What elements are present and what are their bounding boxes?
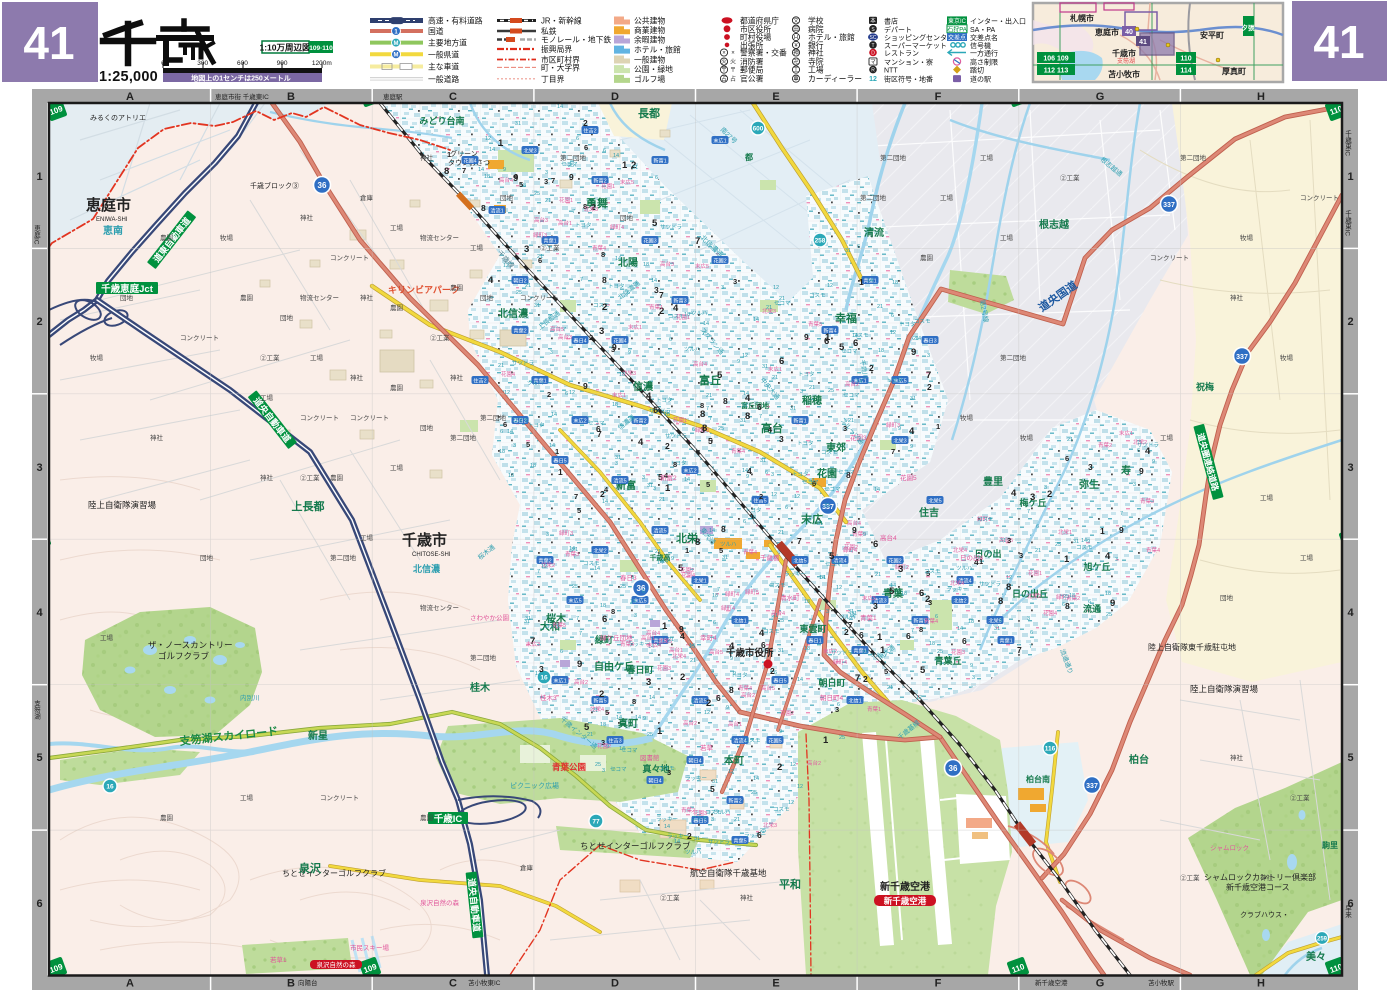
- svg-text:337: 337: [1236, 354, 1248, 361]
- svg-text:ENIWA-SHI: ENIWA-SHI: [96, 217, 128, 223]
- svg-text:21: 21: [778, 530, 784, 536]
- svg-text:3: 3: [898, 564, 903, 575]
- svg-text:青葉4: 青葉4: [1146, 546, 1160, 554]
- svg-text:25: 25: [1055, 542, 1061, 548]
- svg-text:ツルハ: ツルハ: [956, 566, 973, 572]
- svg-text:サツドラ: サツドラ: [708, 839, 730, 846]
- svg-text:8: 8: [702, 423, 707, 434]
- svg-text:苫小牧市: 苫小牧市: [1108, 69, 1140, 79]
- svg-text:緑町3: 緑町3: [559, 529, 573, 537]
- svg-text:6: 6: [500, 429, 503, 435]
- svg-text:セコマ: セコマ: [843, 392, 860, 399]
- svg-text:倉庫: 倉庫: [520, 863, 534, 872]
- svg-text:7: 7: [797, 536, 802, 546]
- svg-text:6: 6: [642, 589, 645, 595]
- svg-text:7: 7: [714, 675, 717, 681]
- svg-text:北栄1: 北栄1: [693, 576, 706, 584]
- svg-text:本町: 本町: [724, 754, 744, 767]
- svg-text:NTT: NTT: [884, 68, 898, 75]
- svg-text:農園: 農園: [240, 293, 253, 302]
- svg-text:18: 18: [684, 312, 690, 318]
- svg-text:石狩PA: 石狩PA: [947, 25, 967, 33]
- svg-text:トヨタ: トヨタ: [745, 506, 762, 514]
- svg-text:31: 31: [534, 303, 540, 309]
- svg-text:6: 6: [576, 136, 579, 142]
- svg-text:8: 8: [444, 166, 449, 177]
- svg-text:1: 1: [1100, 526, 1105, 536]
- svg-text:ラッキー: ラッキー: [656, 816, 678, 823]
- svg-text:団地: 団地: [120, 293, 134, 302]
- svg-text:北栄2: 北栄2: [1027, 592, 1041, 600]
- svg-text:5: 5: [652, 218, 658, 229]
- svg-text:緑町4: 緑町4: [725, 590, 739, 598]
- svg-text:神社: 神社: [808, 48, 824, 58]
- svg-text:ツルハ: ツルハ: [714, 810, 731, 816]
- svg-text:12: 12: [890, 330, 896, 336]
- svg-text:14: 14: [602, 499, 608, 505]
- svg-text:H: H: [1257, 978, 1265, 990]
- svg-text:ゴルフクラブ: ゴルフクラブ: [158, 651, 210, 661]
- svg-text:ラッキー: ラッキー: [628, 641, 650, 648]
- svg-text:6: 6: [584, 143, 588, 152]
- svg-text:振興局界: 振興局界: [541, 44, 572, 54]
- svg-text:花園1: 花園1: [601, 182, 615, 190]
- svg-text:18: 18: [878, 348, 884, 354]
- svg-text:2: 2: [600, 489, 605, 499]
- svg-text:18: 18: [968, 619, 974, 625]
- svg-text:第二団地: 第二団地: [560, 153, 587, 162]
- svg-text:8: 8: [602, 275, 607, 285]
- svg-text:花園2: 花園2: [713, 256, 726, 264]
- svg-text:18: 18: [600, 722, 606, 728]
- svg-text:7: 7: [579, 631, 582, 637]
- svg-text:②工業: ②工業: [660, 893, 680, 902]
- svg-text:恵庭市: 恵庭市: [1095, 27, 1119, 37]
- svg-text:緑ケ丘団地: 緑ケ丘団地: [600, 633, 633, 642]
- svg-text:7: 7: [576, 616, 579, 622]
- svg-text:緑町3: 緑町3: [533, 231, 547, 239]
- svg-text:北栄1: 北栄1: [1058, 528, 1072, 536]
- svg-text:5: 5: [839, 342, 845, 353]
- svg-text:一般県道: 一般県道: [428, 49, 459, 59]
- svg-text:1: 1: [1347, 171, 1353, 183]
- svg-text:21: 21: [875, 572, 881, 578]
- svg-text:高台2: 高台2: [683, 719, 697, 727]
- svg-text:ラッキー: ラッキー: [784, 571, 806, 578]
- svg-text:恵庭駅: 恵庭駅: [383, 92, 403, 101]
- svg-text:F: F: [935, 91, 942, 103]
- svg-text:団地: 団地: [480, 293, 494, 302]
- svg-text:北栄4: 北栄4: [672, 652, 686, 660]
- svg-text:31: 31: [817, 521, 823, 527]
- svg-text:21: 21: [668, 637, 674, 643]
- svg-text:31: 31: [632, 165, 638, 171]
- svg-text:花園2: 花園2: [844, 543, 858, 551]
- svg-text:5: 5: [526, 440, 530, 449]
- svg-text:新富1: 新富1: [793, 416, 806, 424]
- svg-text:泉沢自然の森: 泉沢自然の森: [317, 960, 357, 969]
- svg-text:文: 文: [793, 16, 799, 24]
- svg-text:神社: 神社: [300, 213, 314, 222]
- svg-text:農園: 農園: [450, 283, 463, 292]
- svg-text:9: 9: [804, 332, 809, 342]
- svg-text:3: 3: [771, 472, 774, 478]
- svg-text:セコマ: セコマ: [610, 766, 627, 773]
- svg-text:25: 25: [937, 649, 943, 655]
- svg-text:3: 3: [826, 609, 829, 615]
- svg-text:12: 12: [742, 353, 748, 359]
- svg-text:陸上自衛隊演習場: 陸上自衛隊演習場: [88, 500, 157, 510]
- svg-text:A: A: [126, 978, 134, 990]
- svg-text:9: 9: [910, 444, 913, 450]
- svg-text:25: 25: [839, 735, 845, 741]
- svg-text:6: 6: [602, 614, 607, 625]
- svg-text:2: 2: [927, 382, 932, 392]
- svg-text:G: G: [1096, 91, 1105, 103]
- svg-text:21: 21: [690, 658, 696, 664]
- svg-text:9: 9: [898, 426, 901, 432]
- svg-text:6: 6: [596, 424, 601, 434]
- svg-text:花園4: 花園4: [501, 370, 515, 378]
- svg-text:高台3: 高台3: [660, 260, 674, 268]
- svg-text:18: 18: [1105, 591, 1111, 597]
- svg-text:8: 8: [919, 625, 923, 634]
- svg-text:末広1: 末広1: [768, 365, 782, 373]
- svg-text:1:25,000: 1:25,000: [99, 69, 158, 85]
- svg-text:14: 14: [478, 167, 484, 173]
- svg-text:一般道路: 一般道路: [428, 74, 459, 84]
- svg-text:火: 火: [721, 59, 727, 66]
- svg-text:春日3: 春日3: [923, 336, 936, 344]
- svg-text:青葉1: 青葉1: [860, 613, 877, 622]
- svg-text:21: 21: [877, 304, 883, 310]
- svg-text:3: 3: [999, 618, 1002, 624]
- svg-text:8: 8: [729, 685, 734, 695]
- svg-text:18: 18: [892, 280, 898, 286]
- svg-text:14: 14: [852, 333, 858, 339]
- svg-text:1: 1: [685, 546, 689, 555]
- svg-text:春日1: 春日1: [808, 636, 821, 644]
- svg-text:5: 5: [706, 480, 710, 489]
- svg-text:トヨタ: トヨタ: [656, 396, 673, 404]
- svg-text:3: 3: [1088, 462, 1093, 472]
- svg-text:公共建物: 公共建物: [634, 16, 665, 26]
- svg-text:夕張: 夕張: [1242, 23, 1256, 32]
- svg-text:5: 5: [36, 752, 42, 764]
- svg-text:3: 3: [1115, 557, 1118, 563]
- svg-text:青葉丘: 青葉丘: [934, 655, 961, 666]
- svg-text:団地: 団地: [280, 313, 294, 322]
- svg-text:高台5: 高台5: [761, 684, 775, 692]
- svg-text:6: 6: [873, 539, 878, 550]
- svg-text:農園: 農園: [390, 303, 403, 312]
- svg-text:団地: 団地: [500, 193, 514, 202]
- svg-text:デパート: デパート: [884, 25, 912, 34]
- svg-text:12: 12: [869, 76, 877, 83]
- svg-text:3: 3: [524, 244, 529, 255]
- svg-text:トヨタ: トヨタ: [528, 421, 545, 429]
- svg-text:18: 18: [804, 646, 810, 652]
- svg-text:春日5: 春日5: [553, 456, 566, 464]
- svg-text:セコマ: セコマ: [774, 300, 791, 307]
- svg-text:5: 5: [708, 436, 713, 446]
- svg-text:桂木: 桂木: [469, 681, 491, 694]
- svg-text:物流センター: 物流センター: [300, 293, 339, 302]
- svg-text:コンクリート: コンクリート: [330, 254, 369, 262]
- svg-text:25: 25: [572, 584, 578, 590]
- svg-text:106 109: 106 109: [1043, 56, 1068, 63]
- svg-text:6: 6: [36, 898, 42, 910]
- svg-text:6: 6: [565, 391, 568, 397]
- svg-text:清流5: 清流5: [613, 476, 626, 484]
- svg-text:1: 1: [936, 422, 940, 431]
- svg-text:9: 9: [628, 350, 631, 356]
- svg-text:25: 25: [568, 163, 574, 169]
- svg-text:F: F: [935, 978, 942, 990]
- svg-text:25: 25: [620, 584, 626, 590]
- svg-text:6: 6: [1088, 599, 1091, 605]
- svg-text:18: 18: [662, 410, 668, 416]
- svg-text:2: 2: [1347, 316, 1353, 328]
- svg-text:丁目界: 丁目界: [541, 75, 565, 84]
- svg-text:花園1: 花園1: [559, 196, 573, 204]
- svg-text:R: R: [871, 68, 875, 74]
- svg-text:コンクリート: コンクリート: [300, 414, 339, 422]
- svg-text:カーディーラー: カーディーラー: [808, 74, 862, 84]
- svg-text:東京IC: 東京IC: [948, 17, 967, 25]
- svg-text:神社: 神社: [740, 893, 754, 902]
- svg-text:3: 3: [545, 170, 548, 176]
- svg-text:桂木3: 桂木3: [540, 693, 557, 702]
- svg-text:31: 31: [524, 619, 530, 625]
- svg-text:ホテル・旅館: ホテル・旅館: [634, 45, 681, 55]
- svg-text:神社: 神社: [1230, 753, 1244, 762]
- svg-text:占: 占: [730, 75, 736, 83]
- svg-text:21: 21: [772, 375, 778, 381]
- svg-text:青葉4: 青葉4: [738, 684, 752, 692]
- svg-text:4: 4: [747, 466, 752, 476]
- svg-text:1: 1: [662, 621, 668, 632]
- svg-text:高さ制限: 高さ制限: [970, 58, 998, 67]
- svg-text:泉沢自然の森: 泉沢自然の森: [420, 898, 460, 907]
- svg-text:市民スキー場: 市民スキー場: [350, 943, 390, 952]
- svg-text:8: 8: [673, 460, 677, 469]
- svg-text:2: 2: [863, 674, 868, 684]
- svg-text:9: 9: [583, 381, 588, 391]
- svg-text:青葉5: 青葉5: [808, 320, 822, 328]
- svg-text:花園2: 花園2: [780, 709, 794, 717]
- svg-text:3: 3: [733, 277, 737, 286]
- svg-text:花園2: 花園2: [680, 566, 694, 574]
- svg-text:77: 77: [592, 819, 600, 826]
- svg-text:インター・出入口: インター・出入口: [970, 16, 1026, 25]
- svg-text:航空自衛隊千歳基地: 航空自衛隊千歳基地: [690, 868, 767, 878]
- svg-text:21: 21: [734, 817, 740, 823]
- svg-text:花園3: 花園3: [657, 664, 671, 672]
- svg-text:農園: 農園: [160, 813, 173, 822]
- svg-text:警察署・交番: 警察署・交番: [740, 48, 787, 58]
- svg-text:258: 258: [815, 238, 826, 245]
- svg-text:トヨタ: トヨタ: [797, 439, 814, 447]
- svg-text:7: 7: [580, 277, 583, 283]
- svg-text:14: 14: [1081, 538, 1087, 544]
- svg-text:18: 18: [619, 372, 625, 378]
- svg-text:千歳ブロック③: 千歳ブロック③: [250, 181, 299, 190]
- svg-text:2: 2: [602, 302, 607, 313]
- svg-text:青葉5: 青葉5: [552, 621, 566, 629]
- svg-text:②工業: ②工業: [540, 243, 560, 252]
- svg-text:25: 25: [751, 790, 757, 796]
- svg-text:千歳市: 千歳市: [1112, 48, 1136, 58]
- svg-text:E: E: [772, 978, 779, 990]
- svg-text:牧場: 牧場: [1280, 353, 1294, 362]
- svg-text:3: 3: [546, 532, 549, 538]
- svg-text:18: 18: [1069, 593, 1075, 599]
- svg-text:第二団地: 第二団地: [450, 433, 477, 442]
- svg-text:7: 7: [891, 447, 895, 456]
- svg-text:E: E: [772, 91, 779, 103]
- svg-text:12: 12: [797, 784, 803, 790]
- svg-text:14: 14: [651, 278, 657, 284]
- svg-text:14: 14: [856, 379, 862, 385]
- svg-text:14: 14: [874, 487, 880, 493]
- svg-text:8: 8: [1006, 582, 1011, 593]
- svg-text:青葉1: 青葉1: [649, 303, 663, 311]
- svg-text:7: 7: [1027, 509, 1030, 515]
- svg-text:レストラン: レストラン: [884, 50, 919, 58]
- svg-text:北信濃: 北信濃: [413, 563, 441, 574]
- svg-text:青葉1: 青葉1: [999, 636, 1012, 644]
- svg-text:末広5: 末広5: [568, 596, 581, 604]
- svg-text:18: 18: [901, 591, 907, 597]
- svg-text:農園: 農園: [920, 253, 933, 262]
- svg-text:花園5: 花園5: [900, 473, 917, 482]
- svg-text:4: 4: [1347, 607, 1354, 619]
- svg-text:14: 14: [753, 776, 759, 782]
- svg-text:工場: 工場: [1260, 493, 1274, 502]
- svg-text:5: 5: [605, 708, 609, 717]
- svg-text:1: 1: [498, 138, 504, 149]
- svg-text:D: D: [871, 51, 875, 57]
- svg-text:ツルハ: ツルハ: [685, 850, 702, 856]
- svg-text:4: 4: [36, 607, 43, 619]
- svg-text:2: 2: [547, 390, 551, 399]
- svg-text:トヨタ: トヨタ: [792, 470, 809, 478]
- svg-text:根志越: 根志越: [1039, 218, 1070, 231]
- svg-text:一般建物: 一般建物: [634, 55, 665, 65]
- svg-text:マンション・寮: マンション・寮: [884, 58, 933, 67]
- svg-text:青葉1: 青葉1: [867, 705, 881, 713]
- svg-text:12: 12: [704, 710, 710, 716]
- svg-text:4: 4: [646, 391, 652, 402]
- svg-text:12: 12: [788, 800, 794, 806]
- svg-text:清流: 清流: [864, 226, 884, 239]
- svg-text:337: 337: [1163, 202, 1175, 209]
- svg-text:2: 2: [869, 363, 874, 373]
- svg-text:モノレール・地下鉄: モノレール・地下鉄: [541, 35, 611, 45]
- svg-text:工場: 工場: [310, 353, 324, 362]
- svg-text:住吉: 住吉: [919, 506, 939, 519]
- svg-text:国道: 国道: [428, 26, 444, 36]
- svg-text:9: 9: [1152, 459, 1155, 465]
- svg-text:2: 2: [36, 316, 42, 328]
- svg-text:CHITOSE-SHI: CHITOSE-SHI: [412, 552, 451, 558]
- svg-text:第二団地: 第二団地: [880, 153, 907, 162]
- svg-text:14: 14: [797, 677, 803, 683]
- svg-text:ラッキー: ラッキー: [667, 833, 689, 840]
- svg-text:4: 4: [1105, 551, 1111, 562]
- svg-text:物流センター: 物流センター: [420, 233, 459, 242]
- svg-text:12: 12: [569, 390, 575, 396]
- svg-text:牧場: 牧場: [220, 233, 234, 242]
- svg-text:6: 6: [837, 702, 840, 708]
- svg-text:18: 18: [929, 641, 935, 647]
- svg-text:41: 41: [1313, 16, 1364, 68]
- svg-text:神社: 神社: [360, 293, 374, 302]
- svg-text:泉沢: 泉沢: [298, 861, 322, 875]
- svg-text:春日町: 春日町: [625, 664, 653, 675]
- svg-text:109·110: 109·110: [309, 45, 333, 52]
- svg-text:神社: 神社: [1260, 873, 1274, 882]
- svg-text:コスモ: コスモ: [512, 417, 529, 424]
- svg-text:ラッキー: ラッキー: [685, 775, 707, 782]
- svg-text:6: 6: [765, 470, 768, 476]
- svg-text:12: 12: [836, 585, 842, 591]
- svg-text:2: 2: [777, 762, 782, 773]
- svg-text:31: 31: [515, 121, 521, 127]
- svg-text:②工業: ②工業: [1290, 793, 1310, 802]
- svg-text:トヨタ: トヨタ: [608, 282, 625, 290]
- svg-text:青葉4: 青葉4: [743, 548, 757, 556]
- svg-text:36: 36: [318, 181, 327, 190]
- svg-text:コスモ: コスモ: [809, 292, 826, 299]
- svg-text:牧場: 牧場: [960, 413, 974, 422]
- svg-text:12: 12: [827, 283, 833, 289]
- svg-text:14: 14: [867, 278, 873, 284]
- svg-text:団地: 団地: [420, 423, 434, 432]
- svg-text:内別川: 内別川: [240, 693, 260, 702]
- svg-text:朝日町: 朝日町: [818, 677, 845, 688]
- svg-text:青葉2: 青葉2: [513, 326, 526, 334]
- svg-text:工: 工: [793, 67, 799, 74]
- svg-text:北栄3: 北栄3: [893, 436, 906, 444]
- svg-text:14: 14: [616, 715, 622, 721]
- svg-text:4: 4: [909, 426, 915, 437]
- svg-text:神社: 神社: [420, 153, 434, 162]
- svg-text:2: 2: [925, 594, 930, 605]
- svg-text:6: 6: [743, 519, 746, 525]
- svg-text:14: 14: [957, 626, 963, 632]
- svg-text:公園・緑地: 公園・緑地: [634, 64, 673, 74]
- svg-text:花園2: 花園2: [597, 742, 611, 750]
- svg-text:2: 2: [599, 689, 604, 700]
- svg-text:コンクリート: コンクリート: [180, 334, 219, 342]
- svg-text:②工業: ②工業: [1180, 873, 1200, 882]
- svg-text:青葉3: 青葉3: [565, 550, 579, 558]
- svg-text:7: 7: [462, 166, 466, 175]
- svg-text:31: 31: [694, 836, 700, 842]
- svg-text:21: 21: [887, 685, 893, 691]
- svg-text:2: 2: [706, 698, 711, 709]
- svg-text:北栄5: 北栄5: [928, 496, 941, 504]
- svg-text:3: 3: [972, 675, 975, 681]
- svg-text:259: 259: [1317, 936, 1328, 942]
- svg-text:牧場: 牧場: [90, 353, 104, 362]
- svg-text:トヨタ: トヨタ: [575, 221, 592, 229]
- svg-text:恵庭市街 千歳東IC: 恵庭市街 千歳東IC: [215, 92, 269, 101]
- svg-text:6: 6: [757, 830, 762, 840]
- svg-text:高台4: 高台4: [771, 609, 785, 617]
